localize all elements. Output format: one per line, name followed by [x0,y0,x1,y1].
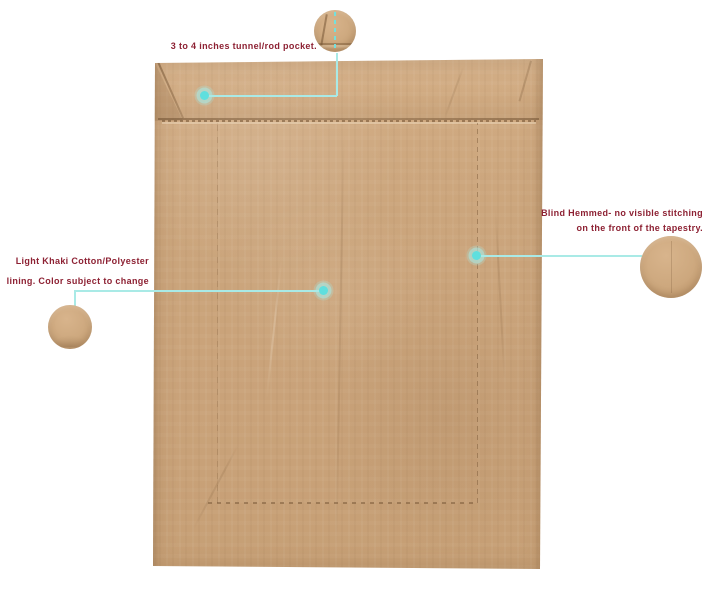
fabric-crease [495,209,506,379]
hotspot-dot-lining [319,286,328,295]
callout-line-blind-hem [481,255,642,257]
inset-hem-seam [671,241,672,293]
callout-line-rod-pocket-horizontal [206,95,337,97]
annotation-blind-hem-line1: Blind Hemmed- no visible stitching [541,206,703,221]
annotation-blind-hem-line2: on the front of the tapestry. [541,221,703,236]
fabric-crease [193,444,239,529]
callout-line-rod-pocket-vertical [336,53,338,96]
detail-inset-lining [48,305,92,349]
inset-shading [52,335,88,347]
annotation-blind-hem-label: Blind Hemmed- no visible stitching on th… [541,206,703,236]
detail-inset-blind-hem [640,236,702,298]
annotation-rod-pocket-label: 3 to 4 inches tunnel/rod pocket. [171,40,317,53]
annotated-product-image: 3 to 4 inches tunnel/rod pocket. Blind H… [0,0,706,600]
fabric-crease [335,129,344,549]
annotation-rod-pocket-text: 3 to 4 inches tunnel/rod pocket. [171,40,317,53]
inset-seam-crease [320,14,327,46]
callout-line-lining-vertical [74,290,76,306]
detail-inset-rod-pocket [314,10,356,52]
blind-hem-seam-left [217,123,218,503]
bottom-hem-stitching [208,502,477,504]
fabric-right-edge-shading [534,59,543,569]
fabric-crease [266,259,283,398]
annotation-lining-line2: lining. Color subject to change [7,271,149,291]
annotation-lining-label: Light Khaki Cotton/Polyester lining. Col… [7,251,149,291]
fabric-left-edge-shading [153,59,159,569]
callout-line-lining-horizontal [75,290,320,292]
tapestry-photo [153,59,543,569]
annotation-lining-line1: Light Khaki Cotton/Polyester [7,251,149,271]
hotspot-dot-blind-hem [472,251,481,260]
rod-pocket-region [153,59,543,120]
inset-dashed-guide-line [334,12,336,50]
hotspot-dot-rod-pocket [200,91,209,100]
pocket-seam-highlight [162,122,536,124]
blind-hem-seam-right [477,123,478,503]
